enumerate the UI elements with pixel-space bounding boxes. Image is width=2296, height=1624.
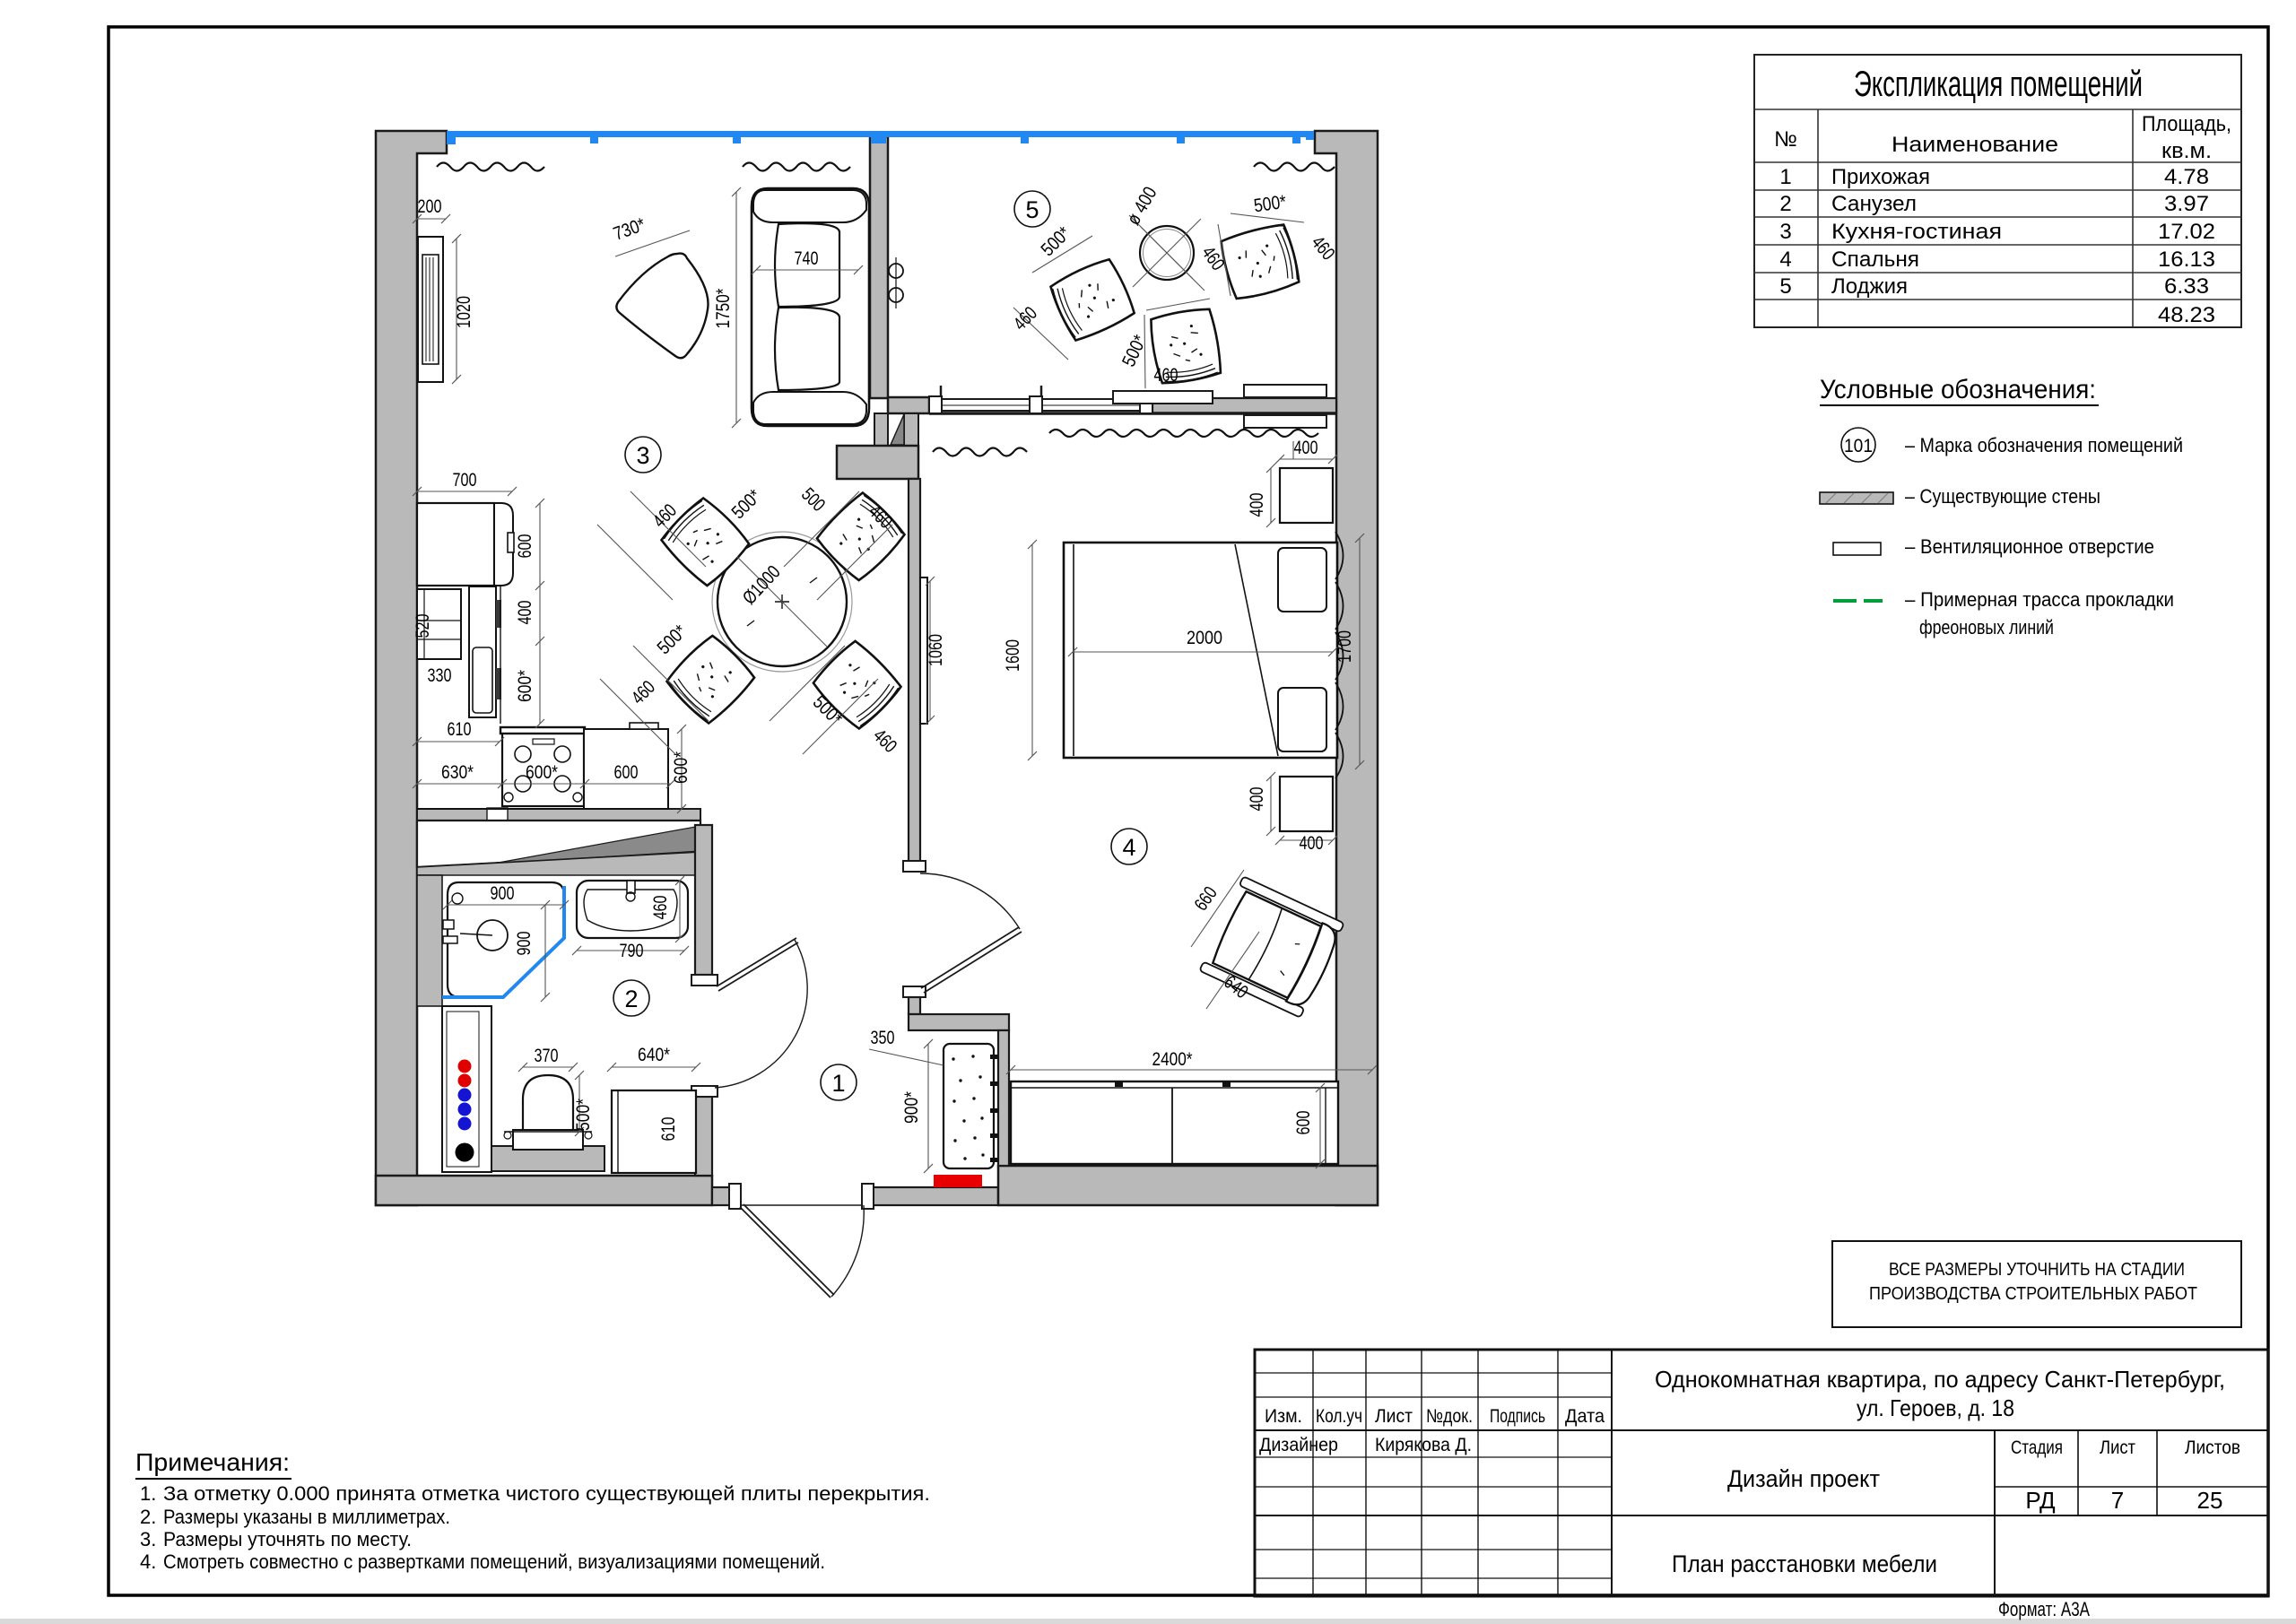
- svg-text:3.97: 3.97: [2164, 192, 2209, 216]
- svg-text:16.13: 16.13: [2158, 248, 2215, 272]
- svg-text:600*: 600*: [515, 670, 535, 702]
- svg-text:900*: 900*: [901, 1091, 922, 1124]
- svg-text:460: 460: [628, 677, 659, 708]
- svg-text:610: 610: [448, 719, 472, 740]
- svg-text:700: 700: [453, 470, 477, 491]
- svg-text:460: 460: [1154, 365, 1178, 386]
- svg-text:400: 400: [1247, 787, 1267, 812]
- svg-text:3.: 3.: [140, 1528, 156, 1550]
- svg-text:Экспликация помещений: Экспликация помещений: [1854, 65, 2143, 104]
- svg-text:Дизайнер: Дизайнер: [1259, 1435, 1338, 1455]
- svg-text:600*: 600*: [526, 762, 558, 783]
- svg-text:Изм.: Изм.: [1265, 1406, 1302, 1427]
- svg-text:600: 600: [614, 762, 639, 783]
- svg-text:3: 3: [636, 442, 649, 469]
- svg-text:Подпись: Подпись: [1490, 1406, 1545, 1427]
- svg-text:4.: 4.: [140, 1550, 156, 1573]
- svg-text:РД: РД: [2025, 1487, 2056, 1514]
- svg-text:ø 400: ø 400: [1123, 184, 1161, 229]
- svg-text:ВСЕ РАЗМЕРЫ УТОЧНИТЬ НА СТАДИИ: ВСЕ РАЗМЕРЫ УТОЧНИТЬ НА СТАДИИ: [1889, 1260, 2185, 1280]
- svg-text:520: 520: [413, 614, 433, 638]
- svg-text:500*: 500*: [1253, 192, 1288, 217]
- svg-text:790: 790: [620, 941, 644, 961]
- svg-text:Размеры уточнять по месту.: Размеры уточнять по месту.: [163, 1528, 412, 1550]
- svg-text:600*: 600*: [671, 751, 691, 784]
- svg-text:Примечания:: Примечания:: [135, 1448, 290, 1476]
- svg-text:370: 370: [535, 1046, 559, 1066]
- svg-text:1.: 1.: [140, 1482, 156, 1505]
- svg-text:6.33: 6.33: [2164, 274, 2209, 299]
- svg-text:5: 5: [1025, 196, 1039, 223]
- svg-text:Кол.уч: Кол.уч: [1316, 1406, 1362, 1427]
- svg-text:200: 200: [418, 196, 442, 217]
- svg-text:Прихожая: Прихожая: [1831, 165, 1930, 189]
- svg-text:– Вентиляционное отверстие: – Вентиляционное отверстие: [1905, 535, 2154, 558]
- svg-text:Стадия: Стадия: [2011, 1437, 2063, 1458]
- svg-text:Дизайн проект: Дизайн проект: [1727, 1465, 1880, 1492]
- svg-text:кв.м.: кв.м.: [2161, 139, 2212, 163]
- svg-text:17.02: 17.02: [2158, 220, 2215, 244]
- svg-text:1750*: 1750*: [713, 289, 734, 329]
- svg-text:Лоджия: Лоджия: [1831, 274, 1908, 299]
- svg-text:ПРОИЗВОДСТВА СТРОИТЕЛЬНЫХ РАБО: ПРОИЗВОДСТВА СТРОИТЕЛЬНЫХ РАБОТ: [1869, 1284, 2197, 1304]
- svg-text:400: 400: [1300, 833, 1324, 854]
- svg-text:2400*: 2400*: [1152, 1049, 1193, 1070]
- svg-text:500*: 500*: [1118, 332, 1151, 369]
- svg-text:730*: 730*: [611, 214, 648, 245]
- svg-text:Условные обозначения:: Условные обозначения:: [1820, 375, 2096, 404]
- svg-text:5: 5: [1779, 274, 1791, 299]
- svg-text:460: 460: [650, 896, 671, 920]
- svg-text:Санузел: Санузел: [1831, 192, 1917, 216]
- svg-text:2.: 2.: [140, 1506, 156, 1528]
- svg-text:400: 400: [1294, 438, 1318, 458]
- svg-text:3: 3: [1779, 220, 1791, 244]
- svg-text:Кирякова Д.: Кирякова Д.: [1375, 1435, 1472, 1455]
- svg-text:610: 610: [658, 1117, 679, 1142]
- svg-text:600: 600: [1293, 1111, 1314, 1135]
- svg-text:Наименование: Наименование: [1892, 133, 2058, 157]
- svg-text:500*: 500*: [1038, 223, 1075, 261]
- svg-text:Формат: А3А: Формат: А3А: [1998, 1598, 2090, 1620]
- svg-text:500*: 500*: [573, 1099, 594, 1131]
- svg-text:Однокомнатная квартира, по адр: Однокомнатная квартира, по адресу Санкт-…: [1655, 1366, 2225, 1393]
- svg-text:– Примерная трасса прокладки: – Примерная трасса прокладки: [1905, 588, 2174, 611]
- svg-text:1: 1: [831, 1070, 845, 1097]
- svg-text:– Существующие стены: – Существующие стены: [1905, 485, 2100, 508]
- svg-text:101: 101: [1844, 436, 1873, 456]
- svg-text:Размеры указаны в миллиметрах.: Размеры указаны в миллиметрах.: [163, 1506, 450, 1528]
- svg-text:– Марка обозначения помещений: – Марка обозначения помещений: [1905, 434, 2183, 456]
- svg-text:Дата: Дата: [1565, 1406, 1605, 1427]
- svg-text:900: 900: [514, 932, 535, 956]
- svg-text:500*: 500*: [654, 621, 691, 659]
- svg-text:За отметку 0.000 принята отмет: За отметку 0.000 принята отметка чистого…: [163, 1482, 930, 1505]
- svg-text:500: 500: [797, 484, 829, 516]
- svg-text:460: 460: [1307, 232, 1338, 264]
- svg-text:4: 4: [1779, 248, 1791, 272]
- svg-text:600: 600: [515, 534, 535, 559]
- svg-text:2: 2: [1779, 192, 1791, 216]
- svg-text:Спальня: Спальня: [1831, 248, 1919, 272]
- svg-text:1600: 1600: [1003, 639, 1023, 672]
- svg-text:Площадь,: Площадь,: [2142, 112, 2231, 136]
- svg-text:Смотреть совместно с развертка: Смотреть совместно с развертками помещен…: [163, 1550, 825, 1573]
- svg-text:№док.: №док.: [1426, 1406, 1473, 1427]
- svg-text:1700: 1700: [1335, 630, 1355, 663]
- svg-text:25: 25: [2197, 1487, 2223, 1514]
- svg-text:2000: 2000: [1187, 628, 1222, 648]
- svg-text:2: 2: [624, 986, 638, 1012]
- svg-text:630*: 630*: [441, 762, 474, 783]
- svg-text:7: 7: [2111, 1487, 2124, 1514]
- svg-text:фреоновых линий: фреоновых линий: [1919, 616, 2054, 638]
- svg-text:350: 350: [871, 1028, 895, 1048]
- svg-text:1060: 1060: [926, 634, 946, 666]
- svg-text:48.23: 48.23: [2158, 303, 2215, 327]
- svg-text:Лист: Лист: [1375, 1406, 1413, 1427]
- svg-text:500*: 500*: [728, 486, 766, 524]
- svg-text:Листов: Листов: [2185, 1437, 2240, 1458]
- svg-text:Лист: Лист: [2100, 1437, 2135, 1458]
- svg-text:1: 1: [1779, 165, 1791, 189]
- svg-text:460: 460: [869, 725, 900, 757]
- svg-text:4: 4: [1122, 834, 1135, 861]
- svg-text:330: 330: [428, 665, 452, 686]
- svg-text:640*: 640*: [638, 1045, 670, 1065]
- svg-text:4.78: 4.78: [2164, 165, 2209, 189]
- svg-text:Кухня-гостиная: Кухня-гостиная: [1831, 220, 2002, 244]
- svg-text:План расстановки мебели: План расстановки мебели: [1672, 1550, 1937, 1577]
- svg-text:400: 400: [1247, 493, 1267, 517]
- svg-text:ул. Героев, д. 18: ул. Героев, д. 18: [1857, 1394, 2014, 1421]
- svg-text:740: 740: [795, 248, 819, 269]
- svg-text:№: №: [1774, 127, 1797, 152]
- svg-text:1020: 1020: [454, 296, 474, 328]
- svg-text:400: 400: [515, 601, 535, 625]
- svg-text:900: 900: [491, 883, 515, 904]
